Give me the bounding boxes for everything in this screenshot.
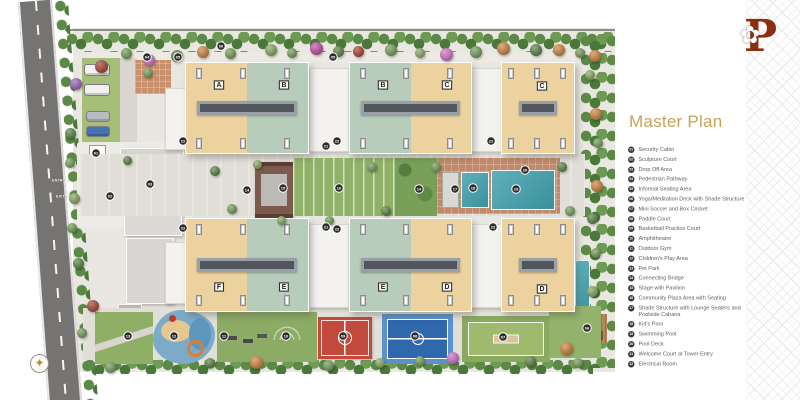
roof-unit (508, 295, 514, 306)
tree (227, 204, 237, 214)
plan-marker-22: 22 (179, 224, 187, 232)
brand-logo: P ✿ (744, 12, 790, 66)
roof-unit (534, 138, 540, 149)
exit-label: EXIT ► (56, 194, 70, 198)
play-equipment (169, 315, 176, 322)
plan-marker-05: 05 (174, 53, 182, 61)
tree (560, 342, 573, 355)
tree (585, 70, 595, 80)
tower-label-A: A (214, 80, 224, 89)
legend-item-label: Security Cabin (639, 147, 675, 153)
legend-number-badge: 03 (628, 166, 635, 173)
tower-A-B: AB (185, 62, 309, 154)
tree (575, 48, 585, 58)
connecting-core (309, 68, 349, 152)
legend-number-badge: 21 (628, 351, 635, 358)
tree (381, 206, 391, 216)
roof-unit (403, 138, 409, 149)
legend-item: 14Connecting Bridge (628, 275, 748, 282)
corner-lawn (549, 306, 601, 358)
plan-marker-22: 22 (487, 137, 495, 145)
tower-F-E: FE (185, 218, 309, 312)
plan-marker-03: 03 (146, 180, 154, 188)
legend-item: 03Drop Off Area (628, 166, 748, 173)
roof-corridor-band (522, 104, 554, 112)
plan-marker-13: 13 (124, 332, 132, 340)
plan-marker-17: 17 (451, 185, 459, 193)
legend-item-label: Paddle Court (639, 216, 671, 222)
legend-item: 06Yoga/Meditation Deck with Shade Struct… (628, 196, 748, 203)
legend-item: 11Outdoor Gym (628, 245, 748, 252)
tree (565, 206, 575, 216)
boundary-wall (65, 29, 615, 31)
roof-unit (534, 295, 540, 306)
parked-car (84, 84, 110, 96)
legend-item-label: Pedestrian Pathway (639, 176, 688, 182)
legend-item: 15Stage with Pavilion (628, 285, 748, 292)
legend-number-badge: 10 (628, 236, 635, 243)
plan-marker-22: 22 (333, 137, 341, 145)
legend-item: 05Informal Seating Area (628, 186, 748, 193)
roof-unit (508, 68, 514, 79)
plan-marker-08: 08 (411, 332, 419, 340)
plan-marker-02: 02 (106, 192, 114, 200)
tower-label-C: C (536, 82, 546, 91)
roof-unit (560, 68, 566, 79)
plan-marker-06: 06 (217, 42, 225, 50)
legend-item-label: Yoga/Meditation Deck with Shade Structur… (639, 196, 745, 202)
legend-item: 20Pool Deck (628, 341, 748, 348)
tree (497, 42, 510, 55)
plan-marker-16: 16 (335, 184, 343, 192)
parked-car (86, 111, 110, 122)
legend-number-badge: 11 (628, 245, 635, 252)
roof-unit (508, 138, 514, 149)
plan-marker-07: 07 (499, 333, 507, 341)
legend-item: 21Welcome Court at Tower Entry (628, 351, 748, 358)
tree (375, 358, 385, 368)
legend-number-badge: 09 (628, 226, 635, 233)
legend-list: 01Security Cabin02Sculpture Court03Drop … (628, 147, 748, 368)
legend-item: 13Pet Park (628, 265, 748, 272)
tree (553, 44, 565, 56)
roof-unit (508, 224, 514, 235)
plan-marker-01: 01 (92, 149, 100, 157)
legend-item-label: Sculpture Court (639, 156, 677, 162)
legend-item: 09Basketball Practice Court (628, 226, 748, 233)
legend-number-badge: 13 (628, 265, 635, 272)
plan-marker-20: 20 (521, 166, 529, 174)
tower-label-E: E (279, 282, 289, 291)
legend-item: 18Kid's Pool (628, 321, 748, 328)
tree (323, 360, 334, 371)
roof-unit (447, 138, 453, 149)
tower-label-E: E (378, 282, 388, 291)
legend-item: 08Paddle Court (628, 216, 748, 223)
tree (415, 356, 425, 366)
tree (121, 48, 132, 59)
tree (525, 356, 536, 367)
tree (573, 358, 583, 368)
legend-item: 04Pedestrian Pathway (628, 176, 748, 183)
stage-pavilion (255, 162, 293, 218)
tree (70, 78, 82, 90)
tree (470, 46, 482, 58)
legend-item: 02Sculpture Court (628, 156, 748, 163)
tree (591, 248, 601, 258)
tower-B-C: BC (349, 62, 472, 154)
parked-car (86, 126, 110, 137)
legend-item-label: Kid's Pool (639, 321, 663, 327)
legend-item: 22Electrical Room (628, 361, 748, 368)
legend-item: 12Children's Play Area (628, 255, 748, 262)
legend-number-badge: 05 (628, 186, 635, 193)
plan-marker-21: 21 (322, 223, 330, 231)
legend-panel: Master Plan 01Security Cabin02Sculpture … (628, 112, 750, 400)
plan-marker-10: 10 (282, 332, 290, 340)
tree (210, 166, 220, 176)
roof-unit (403, 224, 409, 235)
plan-marker-22: 22 (333, 225, 341, 233)
legend-item-label: Swimming Pool (639, 331, 677, 337)
legend-item: 10Amphitheatre (628, 236, 748, 243)
legend-number-badge: 17 (628, 305, 635, 312)
tree (65, 128, 76, 139)
roof-corridor-band (522, 261, 554, 269)
page: ENTRY ► EXIT ► (0, 0, 800, 400)
tree (77, 328, 87, 338)
plan-marker-12: 12 (170, 332, 178, 340)
tree (105, 362, 116, 373)
roof-unit (534, 68, 540, 79)
legend-title: Master Plan (629, 112, 748, 132)
tree (143, 68, 153, 78)
plumeria-flower-icon: ✿ (740, 21, 760, 50)
roof-unit (240, 224, 246, 235)
roof-corridor (519, 258, 557, 272)
legend-number-badge: 15 (628, 285, 635, 292)
roof-unit (560, 295, 566, 306)
roof-unit (284, 224, 290, 235)
legend-item-label: Basketball Practice Court (639, 226, 701, 232)
tree (95, 60, 108, 73)
legend-item-label: Drop Off Area (639, 166, 673, 172)
legend-number-badge: 02 (628, 156, 635, 163)
tree (225, 48, 236, 59)
roof-unit (240, 295, 246, 306)
tree (250, 356, 263, 369)
plan-marker-18: 18 (469, 184, 477, 192)
tree (65, 158, 75, 168)
roof-corridor-band (364, 104, 457, 112)
roof-unit (360, 68, 366, 79)
tree (353, 46, 364, 57)
roof-corridor-band (200, 104, 294, 112)
entry-arrow-icon: ► (66, 178, 70, 182)
tower-D: D (501, 218, 575, 312)
legend-item: 16Community Plaza Area with Seating (628, 295, 748, 302)
roof-unit (196, 224, 202, 235)
tree (73, 258, 84, 269)
plan-marker-21: 21 (322, 142, 330, 150)
legend-number-badge: 06 (628, 196, 635, 203)
tree (265, 44, 277, 56)
legend-number-badge: 20 (628, 341, 635, 348)
roof-corridor (197, 258, 297, 272)
tree (277, 216, 286, 225)
roof-corridor (361, 258, 460, 272)
swimming-pool (491, 170, 555, 210)
legend-item: 07Mini Soccer and Box Cricket (628, 206, 748, 213)
roof-corridor (361, 101, 460, 115)
tree (253, 160, 262, 169)
tower-label-D: D (442, 282, 452, 291)
entry-label: ENTRY ► (52, 178, 70, 182)
plan-marker-09: 09 (339, 332, 347, 340)
roof-unit (360, 295, 366, 306)
legend-number-badge: 08 (628, 216, 635, 223)
legend-item-label: Pool Deck (639, 341, 664, 347)
plan-marker-22: 22 (179, 137, 187, 145)
legend-number-badge: 07 (628, 206, 635, 213)
roof-unit (360, 224, 366, 235)
tree (197, 46, 209, 58)
roof-unit (447, 224, 453, 235)
roof-unit (534, 224, 540, 235)
legend-item-label: Community Plaza Area with Seating (639, 295, 726, 301)
legend-item-label: Welcome Court at Tower Entry (639, 351, 713, 357)
roof-unit (196, 68, 202, 79)
tree (440, 48, 453, 61)
roof-unit (196, 295, 202, 306)
tree (447, 352, 459, 364)
legend-number-badge: 14 (628, 275, 635, 282)
roof-unit (284, 68, 290, 79)
tree (593, 138, 603, 148)
roof-corridor-band (364, 261, 457, 269)
roof-unit (560, 224, 566, 235)
roof-corridor (519, 101, 557, 115)
compass-icon: ✦ (30, 354, 49, 373)
plan-marker-19: 19 (512, 185, 520, 193)
play-equipment (187, 340, 204, 357)
tree (310, 42, 323, 55)
legend-item: 17Shade Structure with Lounge Seaters an… (628, 305, 748, 318)
tree (587, 286, 598, 297)
legend-number-badge: 12 (628, 255, 635, 262)
legend-number-badge: 18 (628, 321, 635, 328)
plan-marker-04: 04 (143, 53, 151, 61)
tree (591, 180, 603, 192)
plan-marker-05: 05 (329, 53, 337, 61)
tree (287, 48, 297, 58)
plan-marker-11: 11 (220, 332, 228, 340)
tower-label-D: D (536, 284, 546, 293)
legend-item-label: Connecting Bridge (639, 275, 684, 281)
site-plan: ENTRY ► EXIT ► (25, 8, 620, 392)
exit-arrow-icon: ► (66, 194, 70, 198)
roof-corridor (197, 101, 297, 115)
roof-unit (403, 68, 409, 79)
legend-number-badge: 19 (628, 331, 635, 338)
legend-item-label: Informal Seating Area (639, 186, 692, 192)
legend-item-label: Pet Park (639, 265, 660, 271)
community-plaza-lawn (293, 158, 395, 216)
roof-unit (360, 138, 366, 149)
tree (87, 300, 99, 312)
roof-unit (403, 295, 409, 306)
exit-text: EXIT (56, 194, 65, 198)
plan-marker-14: 14 (243, 186, 251, 194)
roof-corridor-band (200, 261, 294, 269)
tree (123, 156, 132, 165)
roof-unit (196, 138, 202, 149)
connecting-core (470, 224, 502, 308)
legend-item-label: Outdoor Gym (639, 245, 672, 251)
tree (557, 162, 567, 172)
tree (69, 193, 80, 204)
plan-marker-15: 15 (279, 184, 287, 192)
tower-E-D: ED (349, 218, 472, 312)
legend-number-badge: 04 (628, 176, 635, 183)
roof-unit (447, 295, 453, 306)
tower-label-B: B (377, 80, 387, 89)
plan-marker-14: 14 (415, 185, 423, 193)
tree (385, 44, 397, 56)
roof-unit (284, 295, 290, 306)
legend-number-badge: 16 (628, 295, 635, 302)
tree (367, 162, 377, 172)
legend-item-label: Amphitheatre (639, 236, 672, 242)
compass-star-icon: ✦ (31, 355, 48, 371)
tree (205, 358, 215, 368)
roof-unit (560, 138, 566, 149)
legend-item-label: Shade Structure with Lounge Seaters and … (639, 305, 749, 318)
legend-item-label: Electrical Room (639, 361, 678, 367)
entry-text: ENTRY (52, 178, 65, 182)
legend-number-badge: 01 (628, 147, 635, 154)
legend-item: 01Security Cabin (628, 147, 748, 154)
legend-item: 19Swimming Pool (628, 331, 748, 338)
connecting-core (309, 224, 349, 308)
roof-unit (447, 68, 453, 79)
tower-label-F: F (214, 282, 224, 291)
connecting-core (470, 68, 502, 152)
tower-label-C: C (442, 80, 452, 89)
roof-unit (240, 68, 246, 79)
legend-item-label: Stage with Pavilion (639, 285, 685, 291)
tower-C: C (501, 62, 575, 154)
legend-item-label: Children's Play Area (639, 255, 688, 261)
tower-label-B: B (278, 80, 288, 89)
plan-marker-22: 22 (489, 223, 497, 231)
tree (431, 162, 441, 172)
plan-marker-06: 06 (583, 324, 591, 332)
tree (589, 50, 601, 62)
legend-item-label: Mini Soccer and Box Cricket (639, 206, 708, 212)
legend-number-badge: 22 (628, 361, 635, 368)
tree (415, 48, 425, 58)
tree (587, 213, 598, 224)
tree (530, 44, 542, 56)
roof-unit (284, 138, 290, 149)
roof-unit (240, 138, 246, 149)
tree (67, 223, 77, 233)
tree (590, 108, 602, 120)
